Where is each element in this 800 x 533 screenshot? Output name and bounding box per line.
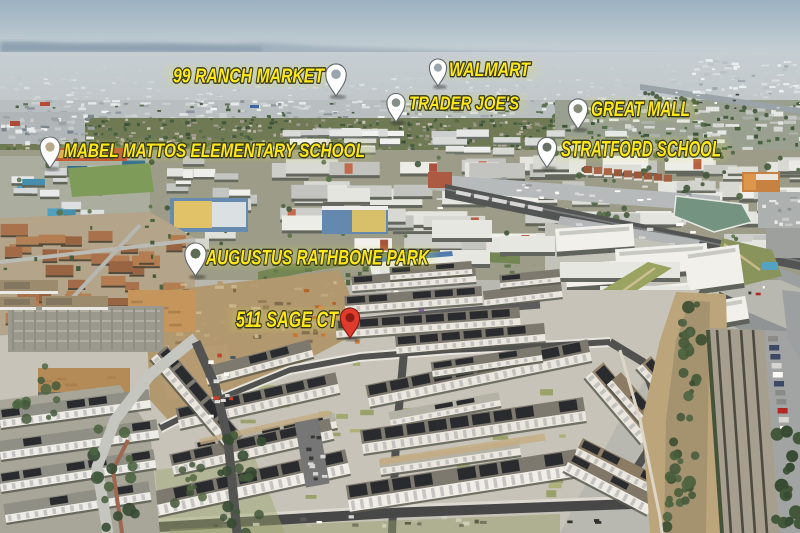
svg-text:MABEL MATTOS ELEMENTARY SCHOOL: MABEL MATTOS ELEMENTARY SCHOOL: [64, 141, 365, 162]
svg-text:STRATFORD SCHOOL: STRATFORD SCHOOL: [561, 137, 721, 162]
svg-text:511 SAGE CT: 511 SAGE CT: [236, 307, 339, 332]
svg-text:TRADER JOE'S: TRADER JOE'S: [409, 94, 519, 114]
svg-text:WALMART: WALMART: [449, 60, 531, 81]
svg-text:AUGUSTUS RATHBONE PARK: AUGUSTUS RATHBONE PARK: [205, 246, 430, 270]
svg-text:GREAT MALL: GREAT MALL: [591, 98, 690, 121]
svg-text:99 RANCH MARKET: 99 RANCH MARKET: [173, 65, 325, 88]
